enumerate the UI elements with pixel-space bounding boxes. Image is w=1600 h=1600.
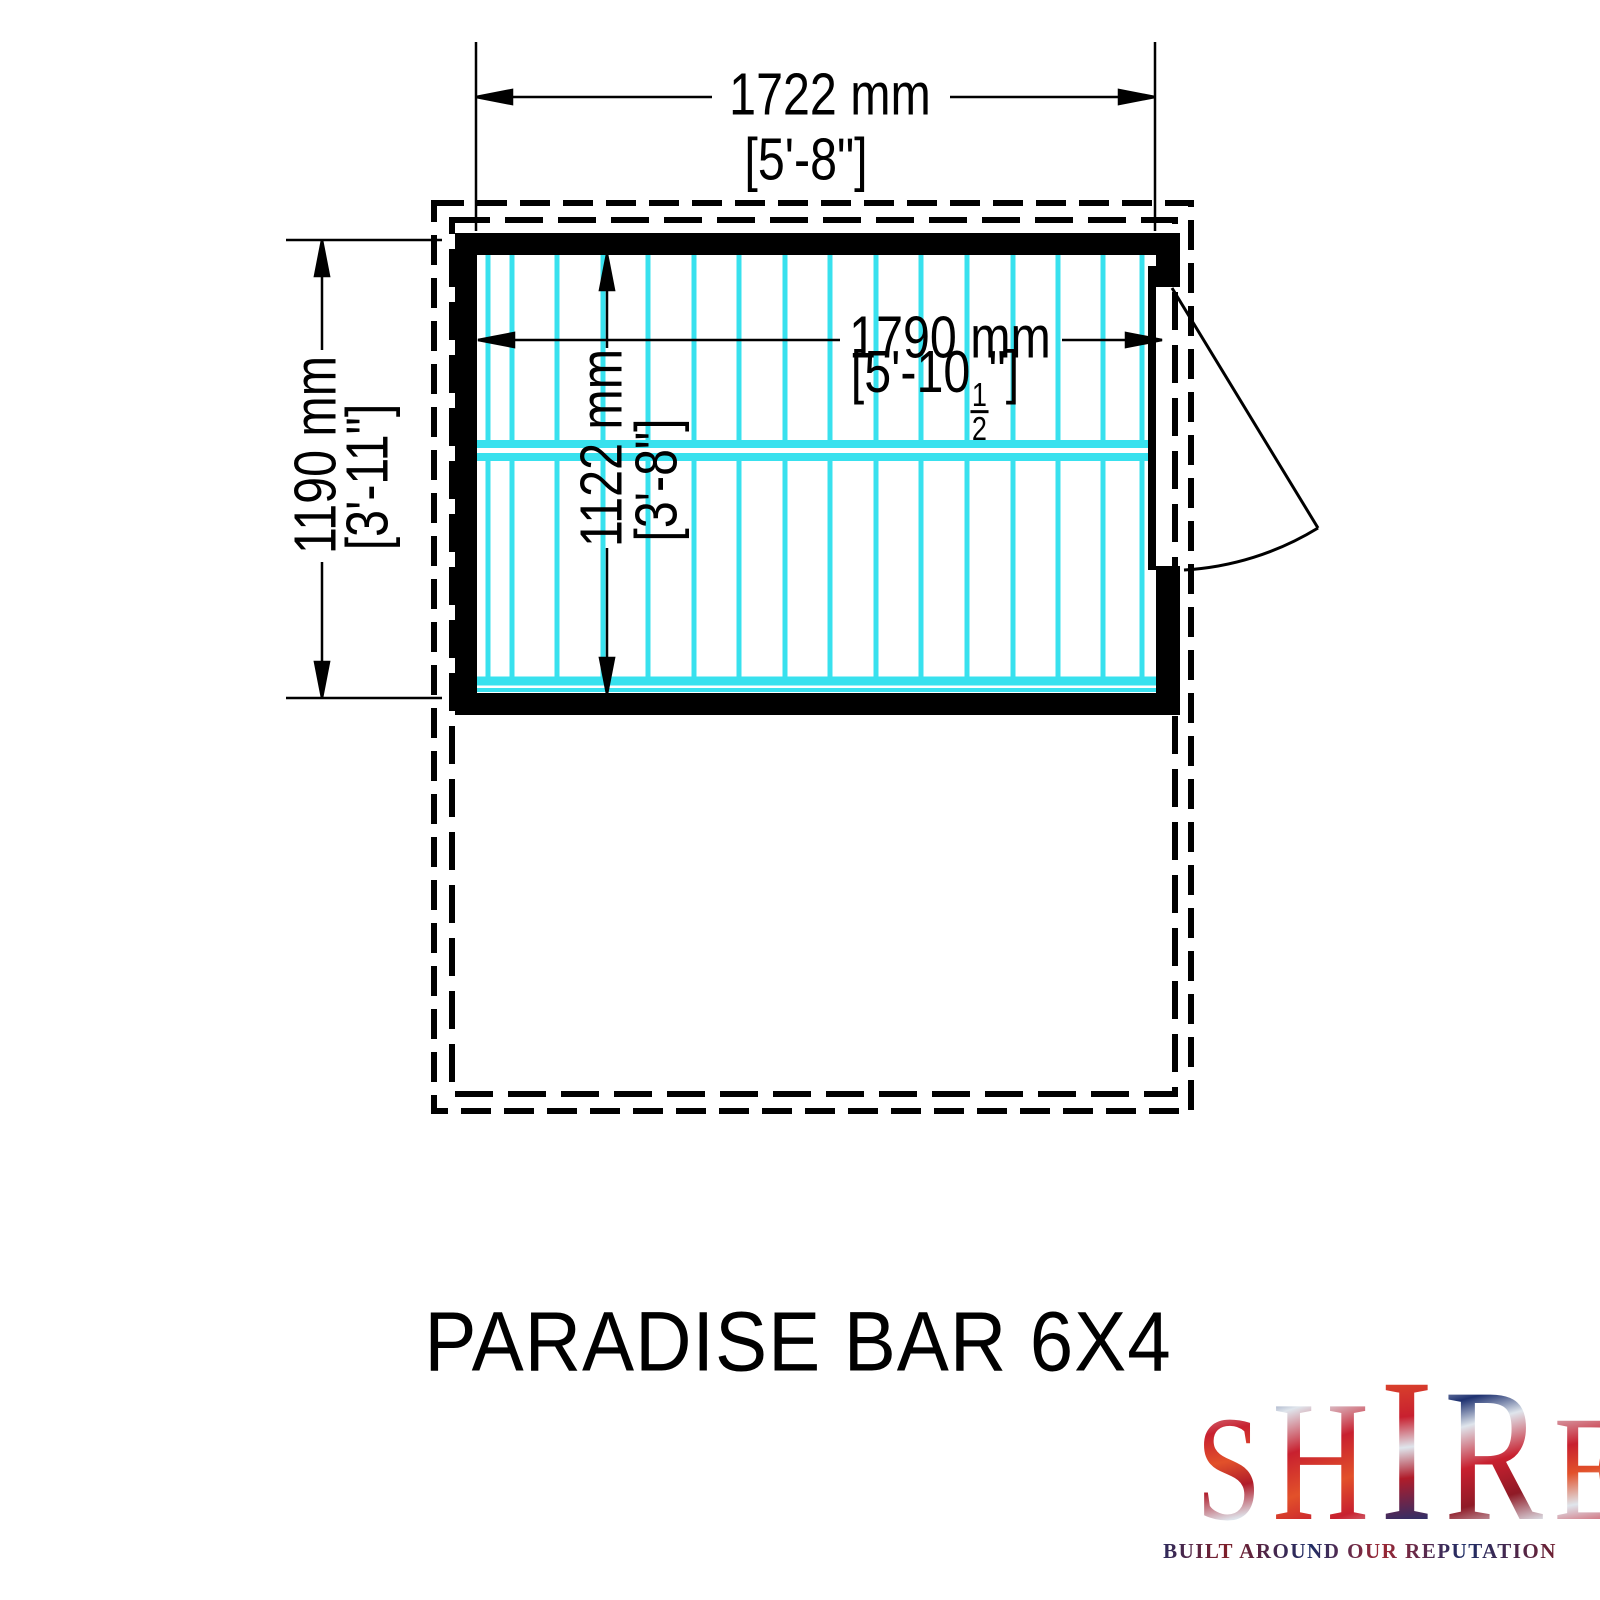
arrow-left [476, 90, 512, 104]
wall-top [455, 233, 1180, 255]
arrow-down [315, 662, 329, 698]
brand-wordmark: S H I R E [1196, 1368, 1524, 1533]
door-swing-arc [1184, 528, 1318, 570]
fraction-numerator: 1 [970, 379, 988, 413]
shire-logo: S H I R E BUILT AROUND OUR REPUTATION [1150, 1368, 1570, 1564]
dim-external-width-imperial: [5'-8"] [744, 131, 867, 190]
wall-bottom [455, 693, 1180, 715]
arrow-right [1119, 90, 1155, 104]
wall-left [455, 233, 477, 715]
shed-walls [455, 233, 1180, 715]
brand-letter: I [1380, 1368, 1437, 1533]
door-leaf [1148, 266, 1156, 570]
brand-letter: H [1272, 1380, 1373, 1545]
arrow-left [478, 333, 514, 347]
fraction-denominator: 2 [970, 414, 988, 445]
blueprint-page: 1722 mm [5'-8"] 1190 mm [3'-11"] 1790 mm… [0, 0, 1600, 1600]
imperial-prefix: [5'-10 [851, 339, 971, 405]
dim-external-width-mm: 1722 mm [729, 66, 931, 125]
wall-right-above-door [1156, 233, 1180, 287]
fraction: 12 [970, 379, 988, 445]
brand-letter: R [1444, 1374, 1547, 1539]
drawing-title: PARADISE BAR 6X4 [424, 1294, 1171, 1391]
wall-right-below-door [1156, 566, 1180, 715]
dim-external-depth-imperial: [3'-11"] [339, 404, 398, 551]
arrow-up [315, 240, 329, 276]
brand-letter: E [1554, 1387, 1600, 1552]
imperial-suffix: "] [989, 339, 1020, 405]
dim-internal-width-imperial: [5'-1012"] [851, 343, 1019, 445]
dim-internal-depth-imperial: [3'-8"] [628, 418, 687, 541]
brand-letter: S [1196, 1387, 1265, 1552]
